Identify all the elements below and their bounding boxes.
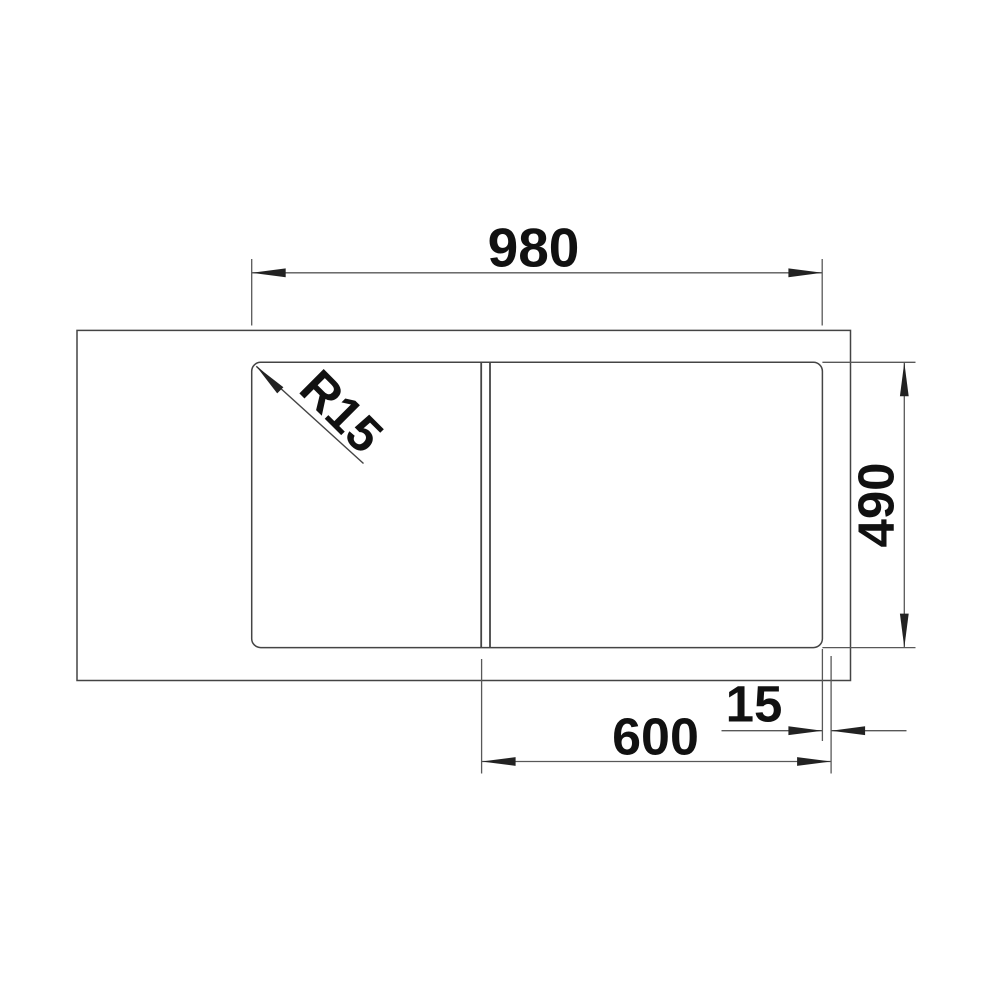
svg-text:980: 980 bbox=[488, 217, 580, 279]
svg-text:600: 600 bbox=[612, 709, 699, 767]
svg-text:490: 490 bbox=[848, 462, 905, 547]
svg-text:R15: R15 bbox=[289, 359, 393, 463]
svg-text:15: 15 bbox=[726, 676, 783, 733]
